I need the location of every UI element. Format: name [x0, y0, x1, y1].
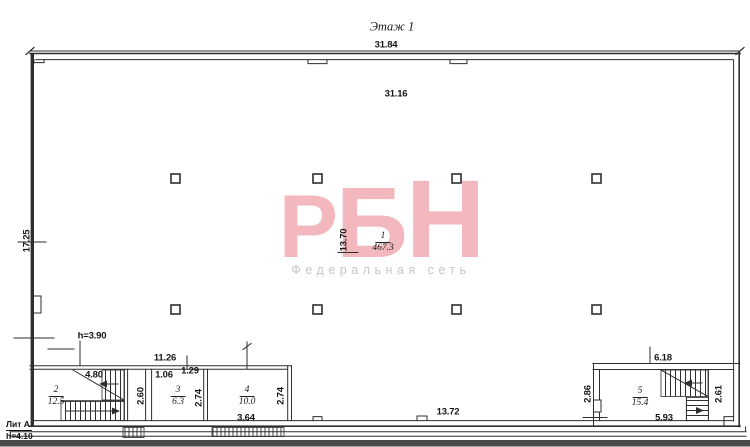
- dim-room5-left-height: 2.86: [583, 385, 594, 403]
- room-1-area: 467.3: [372, 243, 393, 254]
- dim-rooms-block-width: 11.26: [154, 353, 176, 364]
- room-label-5: 5 15.4: [632, 386, 649, 409]
- room-label-3: 3 6.3: [171, 385, 186, 408]
- room-2-number: 2: [49, 385, 64, 397]
- dim-room3-height: 2.74: [194, 389, 205, 407]
- dim-hall-height: 13.70: [339, 229, 350, 252]
- dim-room4-width: 3.64: [237, 413, 255, 424]
- dim-room5-right-height: 2.61: [714, 385, 725, 403]
- room-4-area: 10.0: [239, 397, 256, 408]
- label-interior-height: h=3.90: [78, 331, 107, 342]
- room-2-area: 12.5: [48, 397, 65, 408]
- label-building-height: h=4.10: [6, 431, 33, 442]
- dim-room5-top-width: 6.18: [654, 353, 672, 364]
- floor-plan-canvas: Р Б Н Федеральная сеть: [0, 0, 750, 447]
- room-3-number: 3: [171, 385, 186, 397]
- room-3-area: 6.3: [172, 397, 184, 408]
- terrace-edge: [10, 427, 746, 436]
- dim-overall-width: 31.84: [375, 40, 398, 51]
- dim-room5-bottom-width: 5.93: [655, 413, 673, 424]
- plan-linework: [0, 0, 750, 447]
- label-lit-a-text: Лит А: [6, 419, 32, 431]
- dim-overall-height: 17.25: [22, 230, 33, 253]
- dim-room4-height: 2.74: [276, 387, 287, 405]
- room-label-4: 4 10.0: [239, 385, 256, 408]
- floor-title: Этаж 1: [370, 20, 415, 35]
- ground-line: [0, 440, 750, 447]
- dim-lobby-height: 2.60: [136, 387, 147, 405]
- room-1-number: 1: [376, 231, 391, 243]
- label-lit-a: Лит А h=4.10: [6, 419, 33, 441]
- dim-stair-flight: 4.80: [85, 370, 103, 381]
- dim-hall-bottom-width: 13.72: [437, 407, 460, 418]
- room-label-1: 1 467.3: [372, 231, 393, 254]
- room-5-number: 5: [633, 386, 648, 398]
- room-4-number: 4: [240, 385, 255, 397]
- dim-room3-offset-right: 1.29: [181, 366, 199, 377]
- dim-room3-offset-left: 1.06: [155, 370, 173, 381]
- dim-interior-width: 31.16: [385, 89, 408, 100]
- room-label-2: 2 12.5: [48, 385, 65, 408]
- room-5-area: 15.4: [632, 398, 649, 409]
